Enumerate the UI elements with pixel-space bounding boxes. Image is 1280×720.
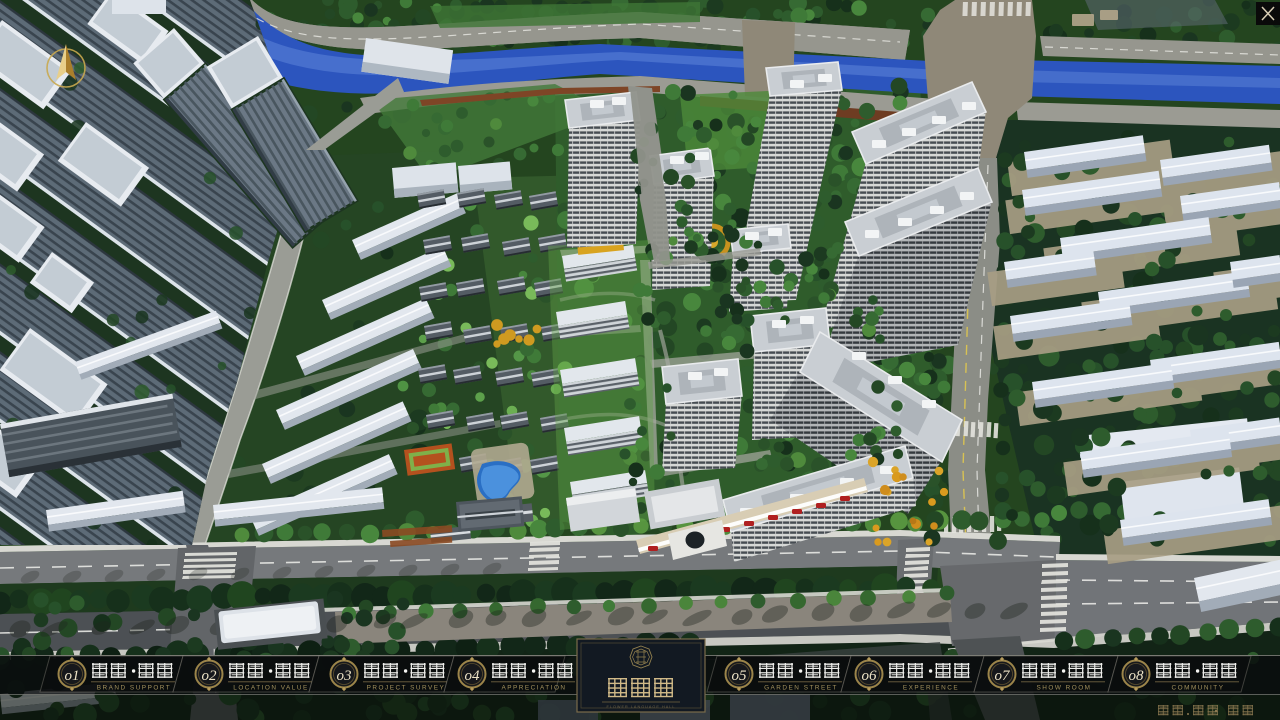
svg-text:EXPERIENCE: EXPERIENCE [903, 685, 959, 692]
svg-text:PROJECT SURVEY: PROJECT SURVEY [367, 685, 446, 692]
svg-text:LOCATION VALUE: LOCATION VALUE [233, 685, 308, 692]
svg-text:o7: o7 [995, 668, 1012, 684]
svg-text:SHOW ROOM: SHOW ROOM [1036, 685, 1091, 692]
svg-text:o3: o3 [337, 668, 352, 684]
svg-text:BRAND SUPPORT: BRAND SUPPORT [97, 685, 171, 692]
svg-text:o1: o1 [65, 668, 80, 684]
svg-text:GARDEN STREET: GARDEN STREET [764, 685, 838, 692]
svg-text:o5: o5 [732, 668, 748, 684]
svg-text:o6: o6 [862, 668, 878, 684]
svg-text:o8: o8 [1129, 668, 1145, 684]
svg-text:APPRECIATION: APPRECIATION [501, 685, 566, 692]
svg-text:COMMUNITY: COMMUNITY [1172, 685, 1225, 692]
svg-text:o2: o2 [202, 668, 218, 684]
svg-text:o4: o4 [465, 668, 481, 684]
svg-text:FLOWER LANGUAGE HALL: FLOWER LANGUAGE HALL [607, 705, 676, 709]
